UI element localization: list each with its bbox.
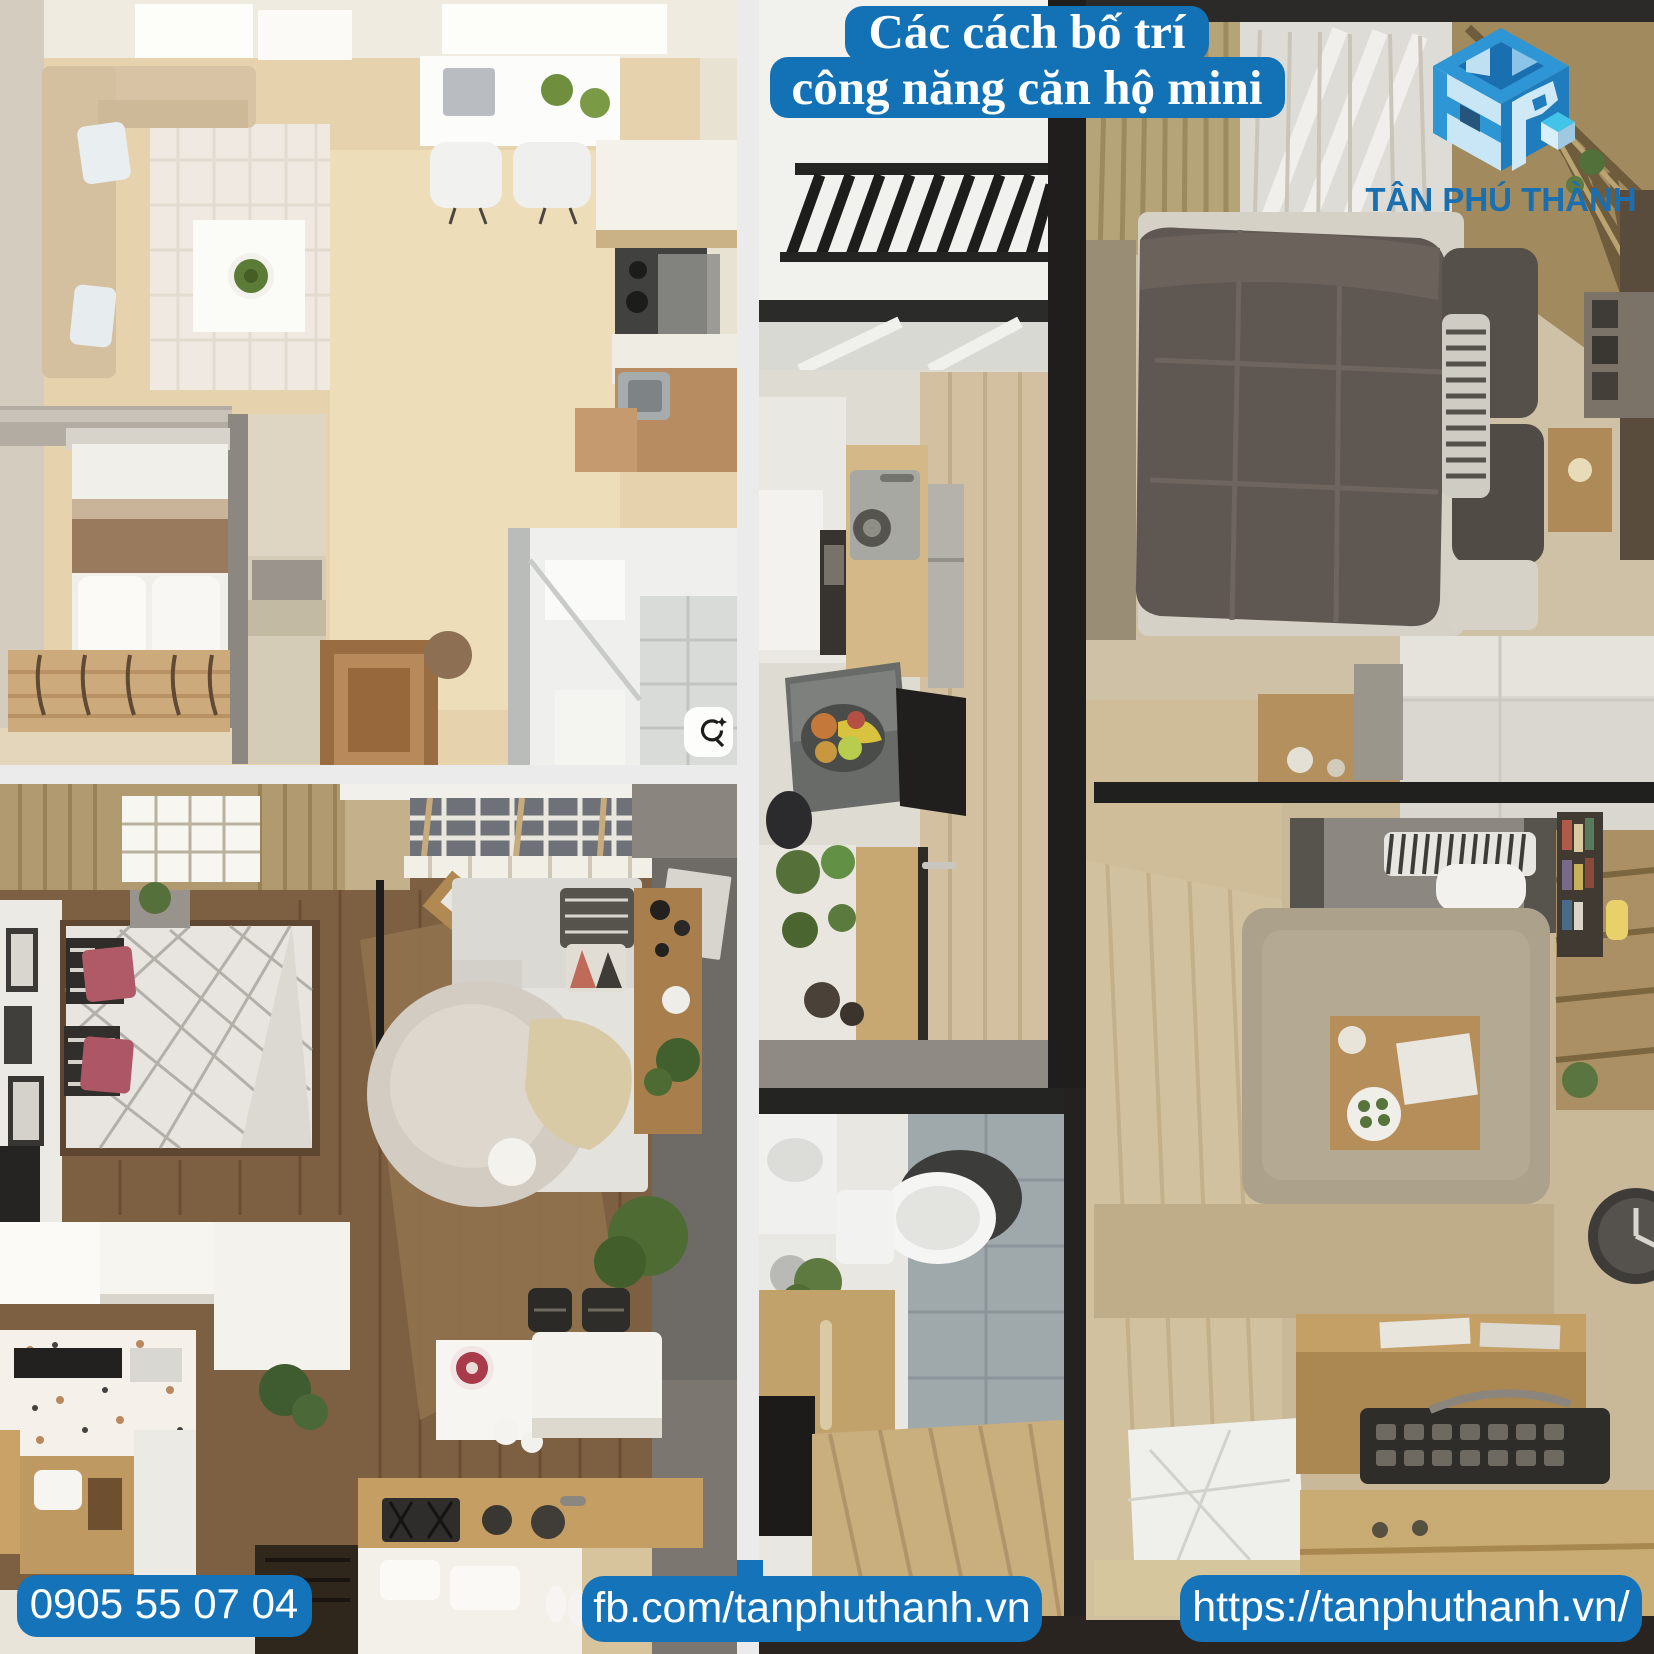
svg-text:0905 55 07 04: 0905 55 07 04 xyxy=(30,1580,299,1627)
svg-text:fb.com/tanphuthanh.vn: fb.com/tanphuthanh.vn xyxy=(593,1584,1030,1632)
svg-text:công năng căn hộ mini: công năng căn hộ mini xyxy=(791,60,1262,115)
svg-text:TÂN PHÚ THÀNH: TÂN PHÚ THÀNH xyxy=(1365,181,1636,218)
svg-text:Các cách bố trí: Các cách bố trí xyxy=(868,4,1186,59)
svg-text:https://tanphuthanh.vn/: https://tanphuthanh.vn/ xyxy=(1192,1583,1630,1631)
